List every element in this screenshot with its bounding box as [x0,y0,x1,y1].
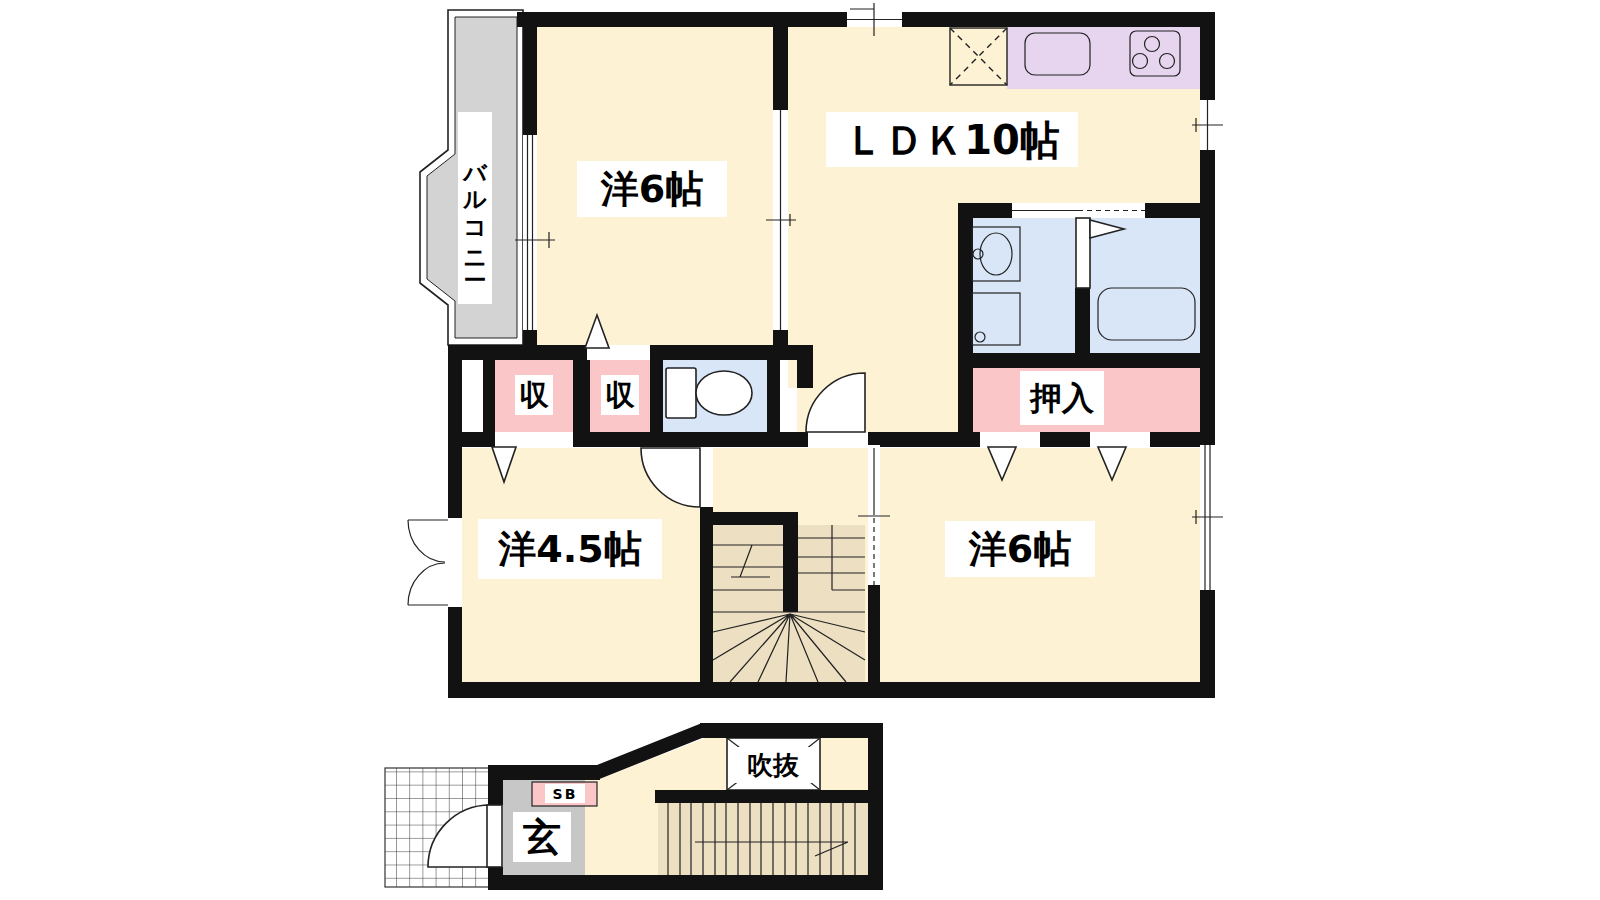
room-label-closet-left: 収 [515,375,553,415]
room-label-oshiire: 押入 [1020,371,1104,425]
room-label-ldk: ＬＤＫ10帖 [826,112,1078,167]
room-label-western6-lower: 洋6帖 [945,521,1095,577]
toilet-fixture [666,368,752,418]
room-label-genkan: 玄 [513,812,571,862]
washroom-area [973,218,1075,353]
room-label-western6-upper: 洋6帖 [577,161,727,217]
toilet-opening [780,388,797,432]
bathroom-area [1090,218,1200,353]
room-label-balcony: バルコニー [458,112,492,304]
room-label-closet-right: 収 [601,375,639,415]
floorplan-page: ＬＤＫ10帖 洋6帖 洋4.5帖 洋6帖 押入 収 収 バルコニー 吹抜 玄 S… [0,0,1600,900]
washroom-sliding-door [1012,203,1145,218]
western45-casement-window [408,518,462,607]
room-label-void: 吹抜 [733,747,813,783]
room-label-shoebox: SB [545,784,585,803]
room-label-western45: 洋4.5帖 [478,519,662,579]
refrigerator-space [950,28,1007,85]
kitchen-counter [1007,27,1200,89]
stairs-1f [658,803,868,875]
